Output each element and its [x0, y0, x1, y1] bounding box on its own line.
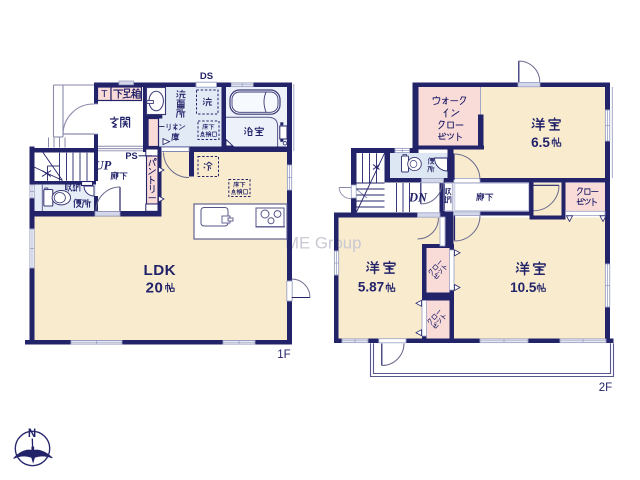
svg-text:ME Group: ME Group	[285, 233, 361, 252]
svg-text:LDK: LDK	[143, 262, 176, 279]
svg-text:6.5: 6.5	[531, 135, 550, 150]
svg-text:DN: DN	[408, 190, 428, 204]
svg-text:2F: 2F	[599, 382, 612, 394]
svg-text:20: 20	[146, 279, 164, 296]
svg-text:PS: PS	[125, 151, 137, 161]
svg-text:UP: UP	[95, 158, 112, 172]
svg-text:5.87: 5.87	[358, 280, 384, 295]
svg-text:DS: DS	[200, 71, 213, 82]
svg-text:1F: 1F	[277, 349, 290, 361]
svg-text:N: N	[28, 428, 36, 440]
svg-text:T: T	[101, 88, 108, 100]
svg-text:10.5: 10.5	[510, 280, 537, 295]
